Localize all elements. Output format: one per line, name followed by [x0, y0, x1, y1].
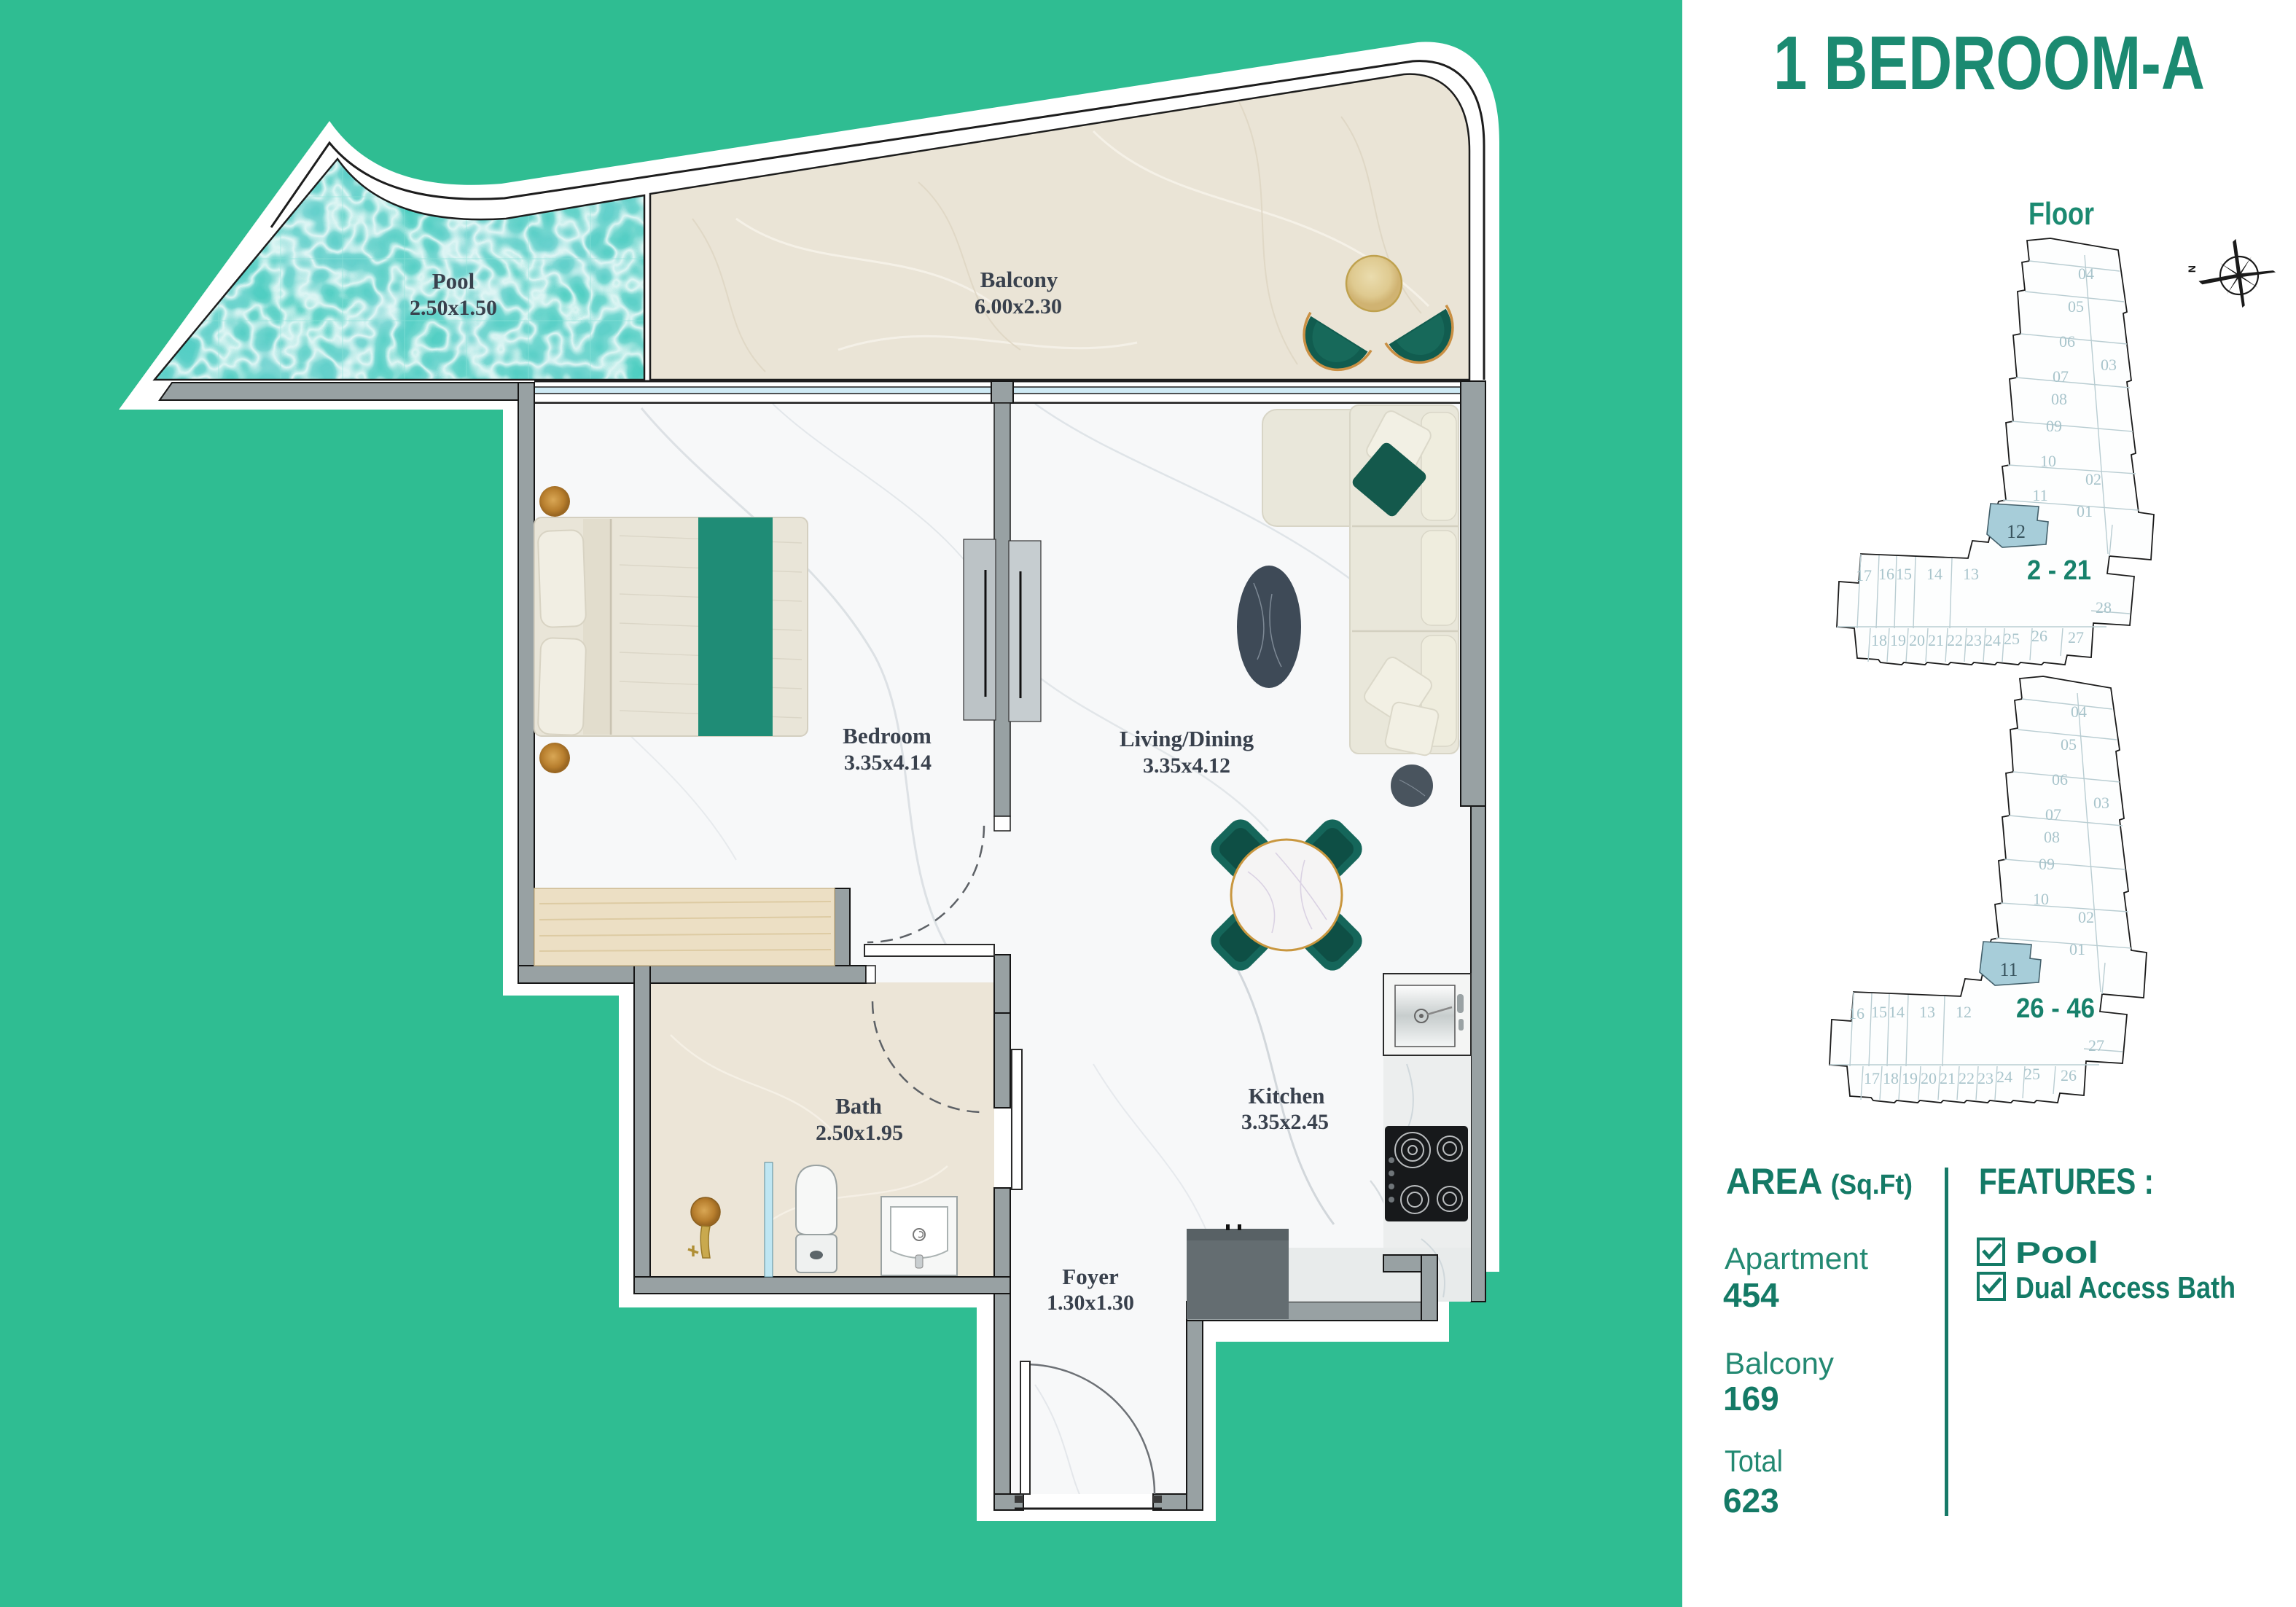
- svg-text:13: 13: [1963, 565, 1979, 583]
- svg-text:1.30x1.30: 1.30x1.30: [1047, 1291, 1134, 1315]
- svg-text:05: 05: [2068, 297, 2084, 316]
- svg-text:08: 08: [2044, 828, 2060, 846]
- svg-text:3.35x4.12: 3.35x4.12: [1143, 754, 1230, 778]
- svg-text:23: 23: [1977, 1069, 1994, 1087]
- svg-text:14: 14: [1926, 565, 1942, 583]
- svg-text:26: 26: [2061, 1066, 2077, 1084]
- svg-text:05: 05: [2061, 735, 2077, 754]
- svg-text:3.35x4.14: 3.35x4.14: [844, 751, 932, 775]
- svg-text:06: 06: [2052, 770, 2068, 789]
- svg-text:07: 07: [2053, 367, 2069, 386]
- svg-text:21: 21: [1928, 631, 1944, 649]
- svg-text:21: 21: [1940, 1069, 1956, 1087]
- svg-text:25: 25: [2004, 630, 2020, 648]
- svg-text:10: 10: [2033, 890, 2049, 908]
- svg-text:Total: Total: [1725, 1444, 1783, 1478]
- svg-text:Living/Dining: Living/Dining: [1120, 726, 1254, 751]
- svg-text:15: 15: [1871, 1003, 1887, 1021]
- svg-text:17: 17: [1864, 1069, 1880, 1087]
- svg-text:01: 01: [2077, 502, 2093, 520]
- svg-text:Pool: Pool: [432, 268, 475, 294]
- svg-text:454: 454: [1723, 1276, 1779, 1314]
- svg-text:11: 11: [1999, 959, 2018, 980]
- svg-text:Balcony: Balcony: [1725, 1346, 1834, 1380]
- svg-text:27: 27: [2068, 628, 2084, 646]
- svg-text:09: 09: [2039, 855, 2055, 873]
- svg-text:09: 09: [2046, 417, 2062, 435]
- svg-text:12: 12: [2007, 521, 2026, 542]
- svg-text:Foyer: Foyer: [1062, 1264, 1119, 1289]
- svg-text:03: 03: [2093, 794, 2109, 812]
- svg-text:02: 02: [2085, 470, 2101, 488]
- svg-text:24: 24: [1985, 631, 2001, 649]
- svg-text:2.50x1.50: 2.50x1.50: [410, 296, 497, 320]
- svg-text:Balcony: Balcony: [980, 267, 1058, 292]
- svg-text:02: 02: [2078, 908, 2094, 926]
- svg-text:2.50x1.95: 2.50x1.95: [816, 1121, 903, 1145]
- svg-text:Kitchen: Kitchen: [1248, 1083, 1324, 1109]
- svg-text:22: 22: [1947, 631, 1963, 649]
- svg-text:08: 08: [2051, 390, 2067, 408]
- svg-text:16: 16: [1878, 565, 1894, 583]
- svg-text:3.35x2.45: 3.35x2.45: [1241, 1110, 1329, 1134]
- svg-text:14: 14: [1889, 1003, 1905, 1021]
- svg-text:16: 16: [1848, 1004, 1864, 1023]
- svg-text:06: 06: [2059, 332, 2075, 351]
- svg-text:6.00x2.30: 6.00x2.30: [975, 294, 1062, 318]
- svg-text:04: 04: [2078, 265, 2094, 283]
- svg-text:FEATURES :: FEATURES :: [1979, 1161, 2154, 1202]
- svg-text:26 - 46: 26 - 46: [2016, 993, 2095, 1024]
- svg-text:2 - 21: 2 - 21: [2027, 555, 2091, 586]
- svg-text:Bath: Bath: [835, 1093, 882, 1119]
- svg-text:Pool: Pool: [2015, 1235, 2098, 1270]
- svg-text:27: 27: [2088, 1036, 2104, 1055]
- svg-text:26: 26: [2031, 627, 2047, 645]
- svg-text:01: 01: [2069, 940, 2085, 958]
- svg-text:12: 12: [1956, 1003, 1972, 1021]
- svg-text:22: 22: [1959, 1069, 1975, 1087]
- svg-text:N: N: [2186, 265, 2198, 273]
- svg-text:11: 11: [2032, 486, 2047, 504]
- svg-text:Apartment: Apartment: [1725, 1241, 1868, 1275]
- svg-text:20: 20: [1921, 1069, 1937, 1087]
- svg-text:23: 23: [1966, 631, 1982, 649]
- svg-text:25: 25: [2024, 1065, 2040, 1083]
- svg-text:Floor: Floor: [2028, 196, 2094, 232]
- svg-text:169: 169: [1723, 1380, 1779, 1418]
- svg-text:13: 13: [1919, 1003, 1935, 1021]
- svg-text:18: 18: [1883, 1069, 1899, 1087]
- svg-text:15: 15: [1896, 565, 1912, 583]
- svg-text:24: 24: [1996, 1068, 2012, 1086]
- svg-text:19: 19: [1902, 1069, 1918, 1087]
- svg-text:623: 623: [1723, 1482, 1779, 1520]
- svg-text:Dual Access Bath: Dual Access Bath: [2015, 1270, 2236, 1305]
- svg-text:04: 04: [2071, 703, 2087, 721]
- svg-text:03: 03: [2101, 356, 2117, 374]
- svg-text:28: 28: [2096, 598, 2112, 617]
- svg-text:20: 20: [1909, 631, 1925, 649]
- svg-text:19: 19: [1890, 631, 1906, 649]
- svg-text:1 BEDROOM-A: 1 BEDROOM-A: [1773, 21, 2205, 106]
- svg-text:07: 07: [2045, 805, 2061, 824]
- svg-text:17: 17: [1856, 566, 1872, 584]
- svg-text:18: 18: [1871, 631, 1887, 649]
- svg-text:Bedroom: Bedroom: [843, 723, 932, 748]
- svg-text:10: 10: [2040, 452, 2056, 470]
